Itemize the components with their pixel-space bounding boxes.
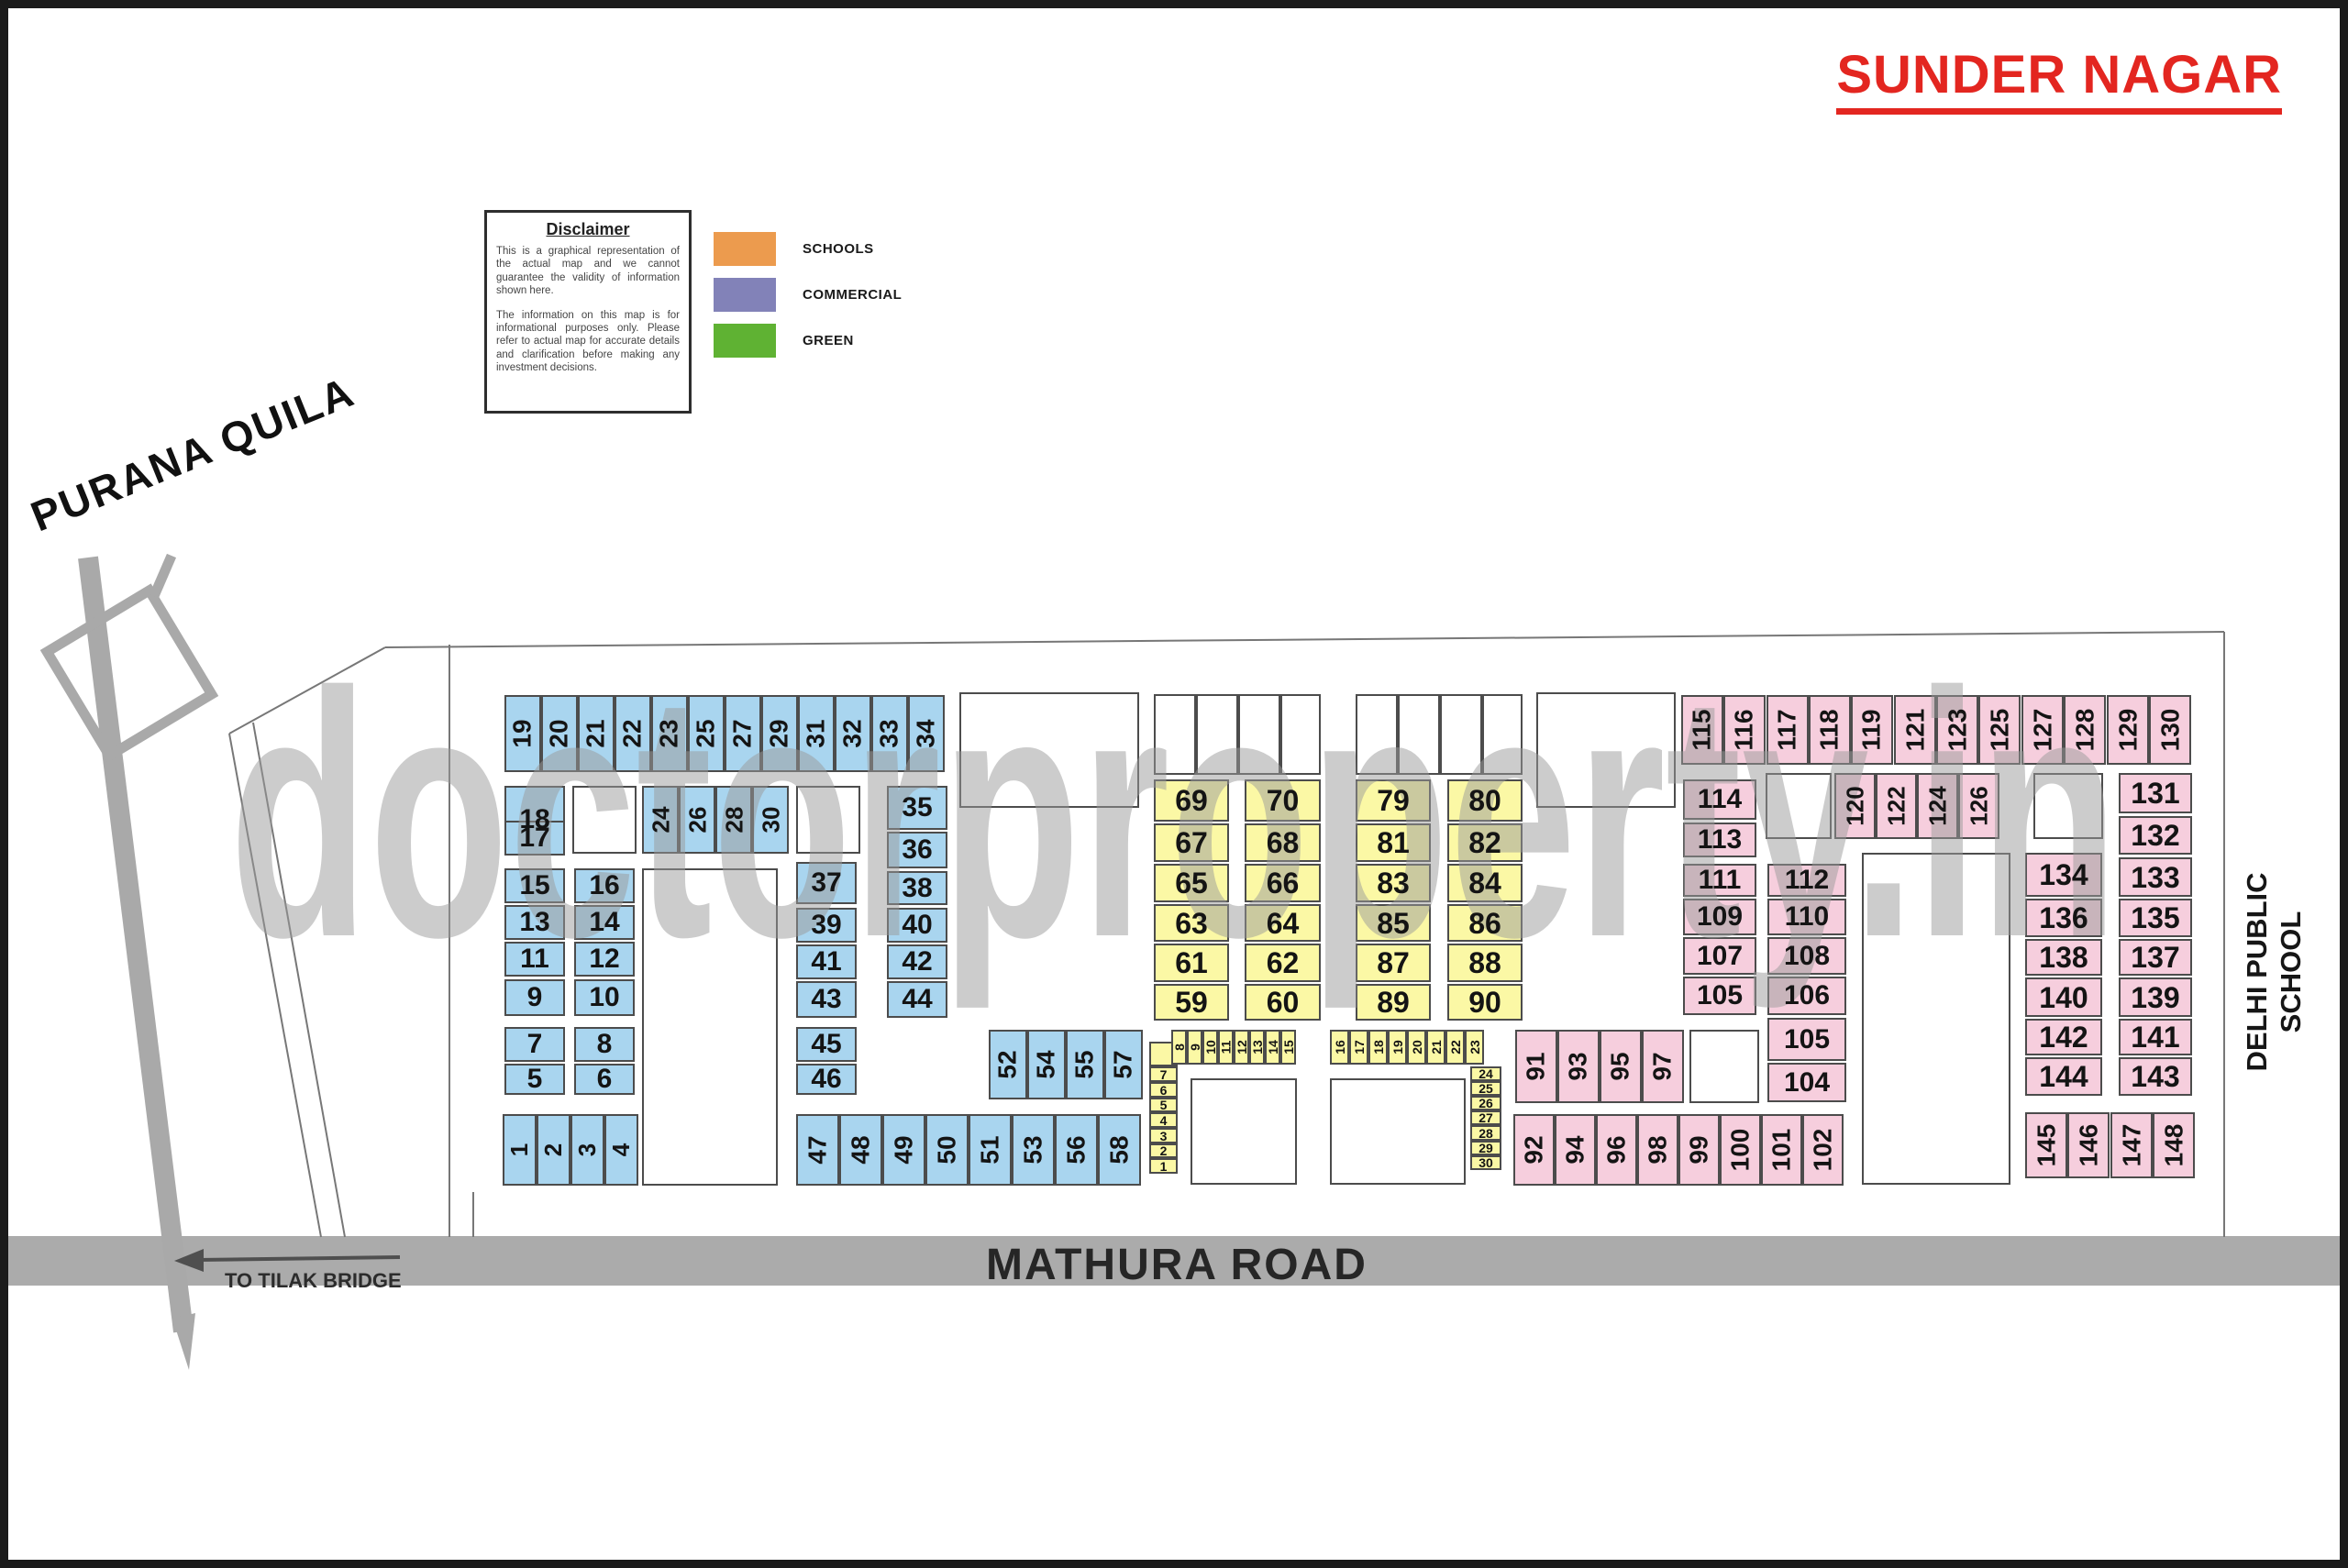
plot-number: 62 — [1267, 948, 1300, 977]
plot-number: 147 — [2119, 1124, 2144, 1167]
plot-number: 15 — [1282, 1040, 1295, 1055]
plot-number: 120 — [1844, 786, 1867, 825]
plot-number: 108 — [1784, 943, 1830, 970]
plot-number: 34 — [914, 719, 939, 747]
plot-102: 102 — [1802, 1114, 1844, 1186]
plot-number: 8 — [1172, 1043, 1185, 1051]
plot-number: 46 — [811, 1066, 841, 1093]
plot-number: 30 — [1479, 1156, 1493, 1169]
plot-number: 3 — [1160, 1130, 1168, 1143]
plot-number: 30 — [759, 807, 782, 834]
plot-number: 119 — [1859, 709, 1885, 750]
plot-number: 91 — [1523, 1052, 1549, 1080]
legend-label: GREEN — [803, 333, 854, 348]
to-tilak-bridge-label: TO TILAK BRIDGE — [225, 1269, 402, 1293]
plot-number: 133 — [2131, 863, 2179, 892]
plot-number: 7 — [1160, 1068, 1168, 1081]
plot-number: 42 — [902, 948, 932, 976]
plot-number: 109 — [1697, 903, 1743, 931]
plot-number: 6 — [1160, 1084, 1168, 1097]
diagonal-road-tip — [172, 1313, 195, 1370]
plot-100: 100 — [1720, 1114, 1761, 1186]
disclaimer-paragraph: The information on this map is for infor… — [496, 309, 680, 375]
plot-144: 144 — [2025, 1057, 2102, 1096]
plot-47: 47 — [796, 1114, 839, 1186]
plot-number: 60 — [1267, 988, 1300, 1017]
plot-number: 9 — [527, 984, 543, 1011]
plot-number: 93 — [1566, 1052, 1591, 1080]
plot-number: 19 — [510, 719, 536, 747]
map-canvas: 1920212223252729313233341824262830171513… — [0, 0, 2348, 1568]
plot-number: 92 — [1522, 1135, 1547, 1164]
plot-number: 17 — [519, 824, 549, 852]
plot-49: 49 — [882, 1114, 925, 1186]
plot-number: 17 — [1352, 1040, 1365, 1055]
plot-number: 69 — [1175, 786, 1208, 815]
plot-number: 53 — [1021, 1135, 1047, 1164]
plot-number: 45 — [811, 1031, 841, 1058]
plot-number: 85 — [1377, 909, 1410, 938]
plot-number: 4 — [610, 1143, 634, 1156]
plot-number: 5 — [1160, 1099, 1168, 1111]
plot-5: 5 — [1149, 1098, 1178, 1112]
plot-number: 20 — [547, 719, 572, 747]
open-area — [1191, 1078, 1297, 1185]
plot-number: 33 — [877, 719, 903, 747]
plot-number: 110 — [1785, 903, 1829, 931]
plot-number: 21 — [583, 719, 609, 747]
plot-number: 142 — [2039, 1022, 2088, 1052]
plot-number: 107 — [1697, 943, 1743, 970]
plot-28: 28 — [1470, 1125, 1501, 1141]
plot-number: 100 — [1728, 1129, 1754, 1172]
disclaimer-paragraph: This is a graphical representation of th… — [496, 245, 680, 298]
plot-number: 26 — [685, 807, 709, 834]
plot-number: 102 — [1811, 1129, 1836, 1172]
plot-number: 23 — [657, 719, 682, 747]
plot-number: 50 — [935, 1135, 960, 1164]
plot-4: 4 — [1149, 1112, 1178, 1128]
plot-number: 104 — [1784, 1069, 1830, 1097]
plot-30: 30 — [1470, 1155, 1501, 1170]
plot-number: 105 — [1697, 982, 1743, 1010]
plot-147: 147 — [2110, 1112, 2153, 1178]
plot-137: 137 — [2119, 939, 2192, 976]
plot-number: 15 — [519, 872, 549, 900]
plot-number: 22 — [620, 719, 646, 747]
plot-number: 3 — [576, 1143, 600, 1156]
plot-number: 88 — [1468, 948, 1501, 977]
plot-3: 3 — [1149, 1128, 1178, 1143]
plot-number: 66 — [1267, 868, 1300, 898]
plot-number: 55 — [1072, 1050, 1098, 1078]
plot-number: 113 — [1698, 826, 1742, 854]
plot-number: 94 — [1563, 1135, 1589, 1164]
dps-line2: SCHOOL — [2274, 825, 2308, 1119]
plot-number: 146 — [2076, 1124, 2101, 1167]
plot-number: 6 — [597, 1066, 613, 1093]
plot-number: 128 — [2072, 709, 2098, 752]
plot-number: 132 — [2131, 821, 2179, 850]
plot-141: 141 — [2119, 1019, 2192, 1055]
plot-145: 145 — [2025, 1112, 2067, 1178]
plot-number: 112 — [1785, 867, 1829, 894]
disclaimer-box: Disclaimer This is a graphical represent… — [484, 210, 692, 414]
plot-number: 121 — [1902, 709, 1928, 752]
plot-number: 131 — [2131, 778, 2179, 808]
plot-number: 117 — [1775, 709, 1800, 750]
plot-number: 134 — [2039, 860, 2088, 889]
plot-number: 67 — [1175, 828, 1208, 857]
plot-number: 44 — [902, 986, 932, 1013]
plot-number: 10 — [1204, 1040, 1217, 1055]
plot-number: 140 — [2039, 983, 2088, 1012]
plot-25: 25 — [1470, 1081, 1501, 1096]
green-color-swatch — [714, 324, 776, 358]
plot-number: 144 — [2039, 1062, 2088, 1091]
open-area — [1330, 1078, 1466, 1185]
plot-number: 12 — [1235, 1040, 1248, 1055]
purana-quila-fort-outline — [47, 591, 211, 756]
plot-number: 26 — [1479, 1097, 1493, 1110]
plot-number: 89 — [1377, 988, 1410, 1017]
plot-number: 54 — [1034, 1050, 1059, 1078]
legend-label: SCHOOLS — [803, 241, 874, 257]
plot-131: 131 — [2119, 773, 2192, 813]
plot-number: 52 — [995, 1050, 1021, 1078]
plot-number: 70 — [1267, 786, 1300, 815]
dps-line1: DELHI PUBLIC — [2240, 825, 2274, 1119]
plot-number: 139 — [2131, 983, 2179, 1012]
plot-number: 111 — [1699, 867, 1742, 894]
plot-number: 138 — [2039, 943, 2088, 972]
plot-101: 101 — [1761, 1114, 1802, 1186]
plot-number: 1 — [508, 1143, 532, 1156]
plot-53: 53 — [1012, 1114, 1055, 1186]
plot-58: 58 — [1098, 1114, 1141, 1186]
plot-number: 11 — [1220, 1041, 1233, 1055]
watermark-text: doctorproperty.in — [229, 620, 2119, 1011]
plot-number: 38 — [902, 875, 932, 902]
plot-number: 136 — [2039, 903, 2088, 933]
plot-5: 5 — [504, 1064, 565, 1095]
plot-number: 99 — [1687, 1135, 1712, 1164]
plot-56: 56 — [1055, 1114, 1098, 1186]
plot-98: 98 — [1637, 1114, 1678, 1186]
plot-number: 4 — [1160, 1114, 1168, 1127]
plot-number: 1 — [1160, 1160, 1168, 1173]
plot-46: 46 — [796, 1064, 857, 1095]
plot-number: 40 — [902, 911, 932, 939]
plot-number: 16 — [589, 872, 619, 900]
plot-number: 22 — [1448, 1040, 1461, 1055]
plot-number: 81 — [1377, 828, 1410, 857]
plot-number: 125 — [1987, 709, 2012, 752]
plot-number: 2 — [542, 1143, 566, 1156]
plot-135: 135 — [2119, 899, 2192, 937]
plot-number: 86 — [1468, 909, 1501, 938]
plot-148: 148 — [2153, 1112, 2195, 1178]
plot-number: 16 — [1333, 1040, 1346, 1055]
plot-2: 2 — [537, 1114, 570, 1186]
plot-29: 29 — [1470, 1141, 1501, 1155]
plot-number: 65 — [1175, 868, 1208, 898]
plot-96: 96 — [1596, 1114, 1637, 1186]
plot-number: 118 — [1817, 709, 1843, 750]
delhi-public-school-label: DELHI PUBLIC SCHOOL — [2240, 825, 2348, 1119]
plot-number: 98 — [1645, 1135, 1671, 1164]
plot-number: 24 — [648, 807, 672, 834]
plot-number: 141 — [2131, 1022, 2179, 1052]
plot-number: 90 — [1468, 988, 1501, 1017]
plot-number: 24 — [1479, 1067, 1493, 1080]
plot-number: 25 — [693, 719, 719, 747]
plot-number: 35 — [902, 794, 932, 822]
plot-130: 130 — [2149, 695, 2191, 765]
plot-48: 48 — [839, 1114, 882, 1186]
plot-number: 49 — [892, 1135, 917, 1164]
plot-number: 21 — [1429, 1040, 1442, 1055]
legend-label: COMMERCIAL — [803, 287, 902, 303]
plot-number: 127 — [2030, 709, 2055, 752]
plot-number: 101 — [1769, 1129, 1795, 1172]
plot-number: 105 — [1784, 1026, 1830, 1054]
plot-number: 9 — [1188, 1043, 1201, 1051]
plot-number: 95 — [1608, 1052, 1634, 1080]
plot-27: 27 — [1470, 1110, 1501, 1125]
plot-number: 7 — [527, 1031, 543, 1058]
plot-2: 2 — [1149, 1143, 1178, 1158]
plot-number: 41 — [811, 948, 841, 976]
plot-number: 137 — [2131, 943, 2179, 972]
plot-number: 29 — [1479, 1142, 1493, 1154]
plot-number: 97 — [1650, 1052, 1676, 1080]
plot-number: 64 — [1267, 909, 1300, 938]
plot-number: 68 — [1267, 828, 1300, 857]
plot-number: 63 — [1175, 909, 1208, 938]
plot-number: 39 — [811, 911, 841, 939]
plot-number: 84 — [1468, 868, 1501, 898]
plot-6: 6 — [1149, 1082, 1178, 1098]
disclaimer-heading: Disclaimer — [496, 220, 680, 239]
plot-number: 31 — [803, 719, 829, 747]
plot-number: 57 — [1111, 1050, 1136, 1078]
plot-1: 1 — [503, 1114, 537, 1186]
plot-143: 143 — [2119, 1057, 2192, 1096]
plot-number: 143 — [2131, 1062, 2179, 1091]
plot-number: 82 — [1468, 828, 1501, 857]
plot-number: 28 — [1479, 1127, 1493, 1140]
plot-number: 58 — [1107, 1135, 1133, 1164]
plot-number: 115 — [1689, 709, 1715, 750]
plot-number: 19 — [1390, 1040, 1403, 1055]
plot-104: 104 — [1767, 1063, 1846, 1102]
plot-26: 26 — [1470, 1096, 1501, 1110]
plot-139: 139 — [2119, 977, 2192, 1017]
map-title: SUNDER NAGAR — [1836, 44, 2282, 115]
plot-3: 3 — [570, 1114, 604, 1186]
plot-number: 11 — [520, 945, 549, 973]
plot-number: 106 — [1784, 982, 1830, 1010]
plot-number: 23 — [1467, 1040, 1480, 1055]
plot-number: 27 — [1479, 1111, 1493, 1124]
plot-number: 8 — [597, 1031, 613, 1058]
plot-number: 20 — [1410, 1040, 1423, 1055]
plot-24: 24 — [1470, 1066, 1501, 1081]
plot-50: 50 — [925, 1114, 969, 1186]
plot-133: 133 — [2119, 857, 2192, 897]
plot-146: 146 — [2067, 1112, 2110, 1178]
plot-number: 126 — [1967, 786, 1991, 825]
plot-1: 1 — [1149, 1158, 1178, 1174]
plot-number: 129 — [2115, 709, 2141, 752]
plot-number: 80 — [1468, 786, 1501, 815]
plot-92: 92 — [1513, 1114, 1555, 1186]
plot-number: 37 — [811, 869, 841, 897]
plot-number: 25 — [1479, 1082, 1493, 1095]
plot-number: 145 — [2033, 1124, 2059, 1167]
plot-94: 94 — [1555, 1114, 1596, 1186]
plot-number: 79 — [1377, 786, 1410, 815]
plot-number: 27 — [730, 719, 756, 747]
plot-number: 122 — [1885, 786, 1909, 825]
plot-number: 28 — [722, 807, 746, 834]
mathura-road-label: MATHURA ROAD — [986, 1240, 1368, 1290]
plot-number: 114 — [1698, 786, 1742, 813]
plot-number: 13 — [519, 909, 549, 936]
commercial-color-swatch — [714, 278, 776, 312]
plot-number: 13 — [1251, 1040, 1264, 1055]
plot-132: 132 — [2119, 816, 2192, 855]
plot-number: 48 — [848, 1135, 874, 1164]
plot-number: 116 — [1732, 709, 1757, 750]
plot-number: 10 — [589, 984, 619, 1011]
plot-number: 123 — [1944, 709, 1970, 752]
plot-number: 124 — [1926, 786, 1950, 825]
plot-number: 59 — [1175, 988, 1208, 1017]
plot-number: 135 — [2131, 903, 2179, 933]
plot-4: 4 — [604, 1114, 638, 1186]
plot-number: 148 — [2161, 1124, 2187, 1167]
plot-number: 83 — [1377, 868, 1410, 898]
plot-number: 43 — [811, 986, 841, 1013]
plot-number: 130 — [2157, 709, 2183, 752]
plot-number: 32 — [840, 719, 866, 747]
plot-number: 14 — [589, 909, 619, 936]
plot-number: 61 — [1175, 948, 1208, 977]
plot-number: 29 — [767, 719, 792, 747]
plot-7: 7 — [1149, 1066, 1178, 1082]
plot-number: 47 — [805, 1135, 831, 1164]
plot-number: 2 — [1160, 1144, 1168, 1157]
plot-number: 36 — [902, 836, 932, 864]
plot-number: 12 — [589, 945, 619, 973]
plot-number: 51 — [978, 1135, 1003, 1164]
schools-color-swatch — [714, 232, 776, 266]
plot-99: 99 — [1678, 1114, 1720, 1186]
tilak-arrow-shaft — [198, 1257, 400, 1260]
fort-stub — [154, 556, 172, 596]
plot-51: 51 — [969, 1114, 1012, 1186]
plot-number: 96 — [1604, 1135, 1630, 1164]
plot-number: 5 — [527, 1066, 543, 1093]
plot-number: 18 — [1371, 1040, 1384, 1055]
plot-number: 87 — [1377, 948, 1410, 977]
plot-number: 14 — [1267, 1040, 1279, 1055]
plot-number: 56 — [1064, 1135, 1090, 1164]
diagonal-road — [88, 558, 183, 1331]
plot-6: 6 — [574, 1064, 635, 1095]
